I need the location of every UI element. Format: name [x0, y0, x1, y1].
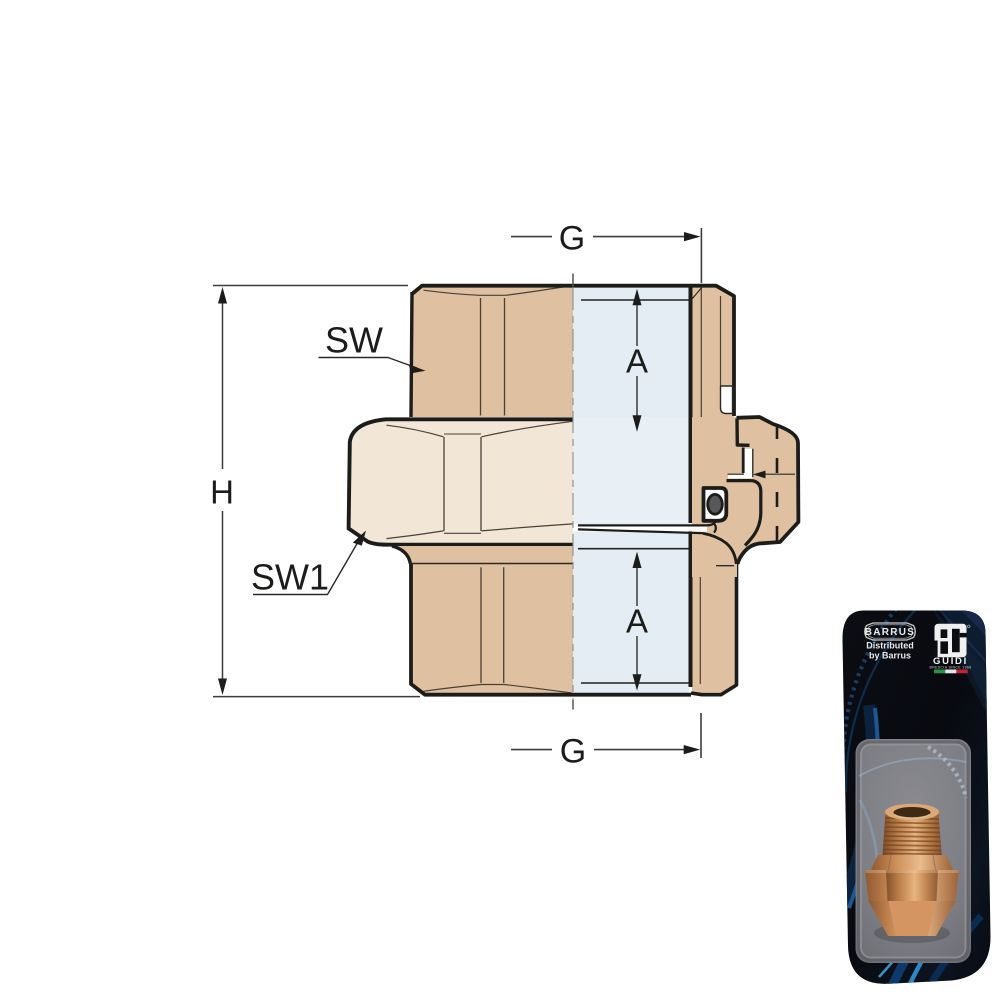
svg-text:G: G: [559, 220, 585, 258]
svg-text:A: A: [626, 342, 648, 379]
svg-text:G: G: [560, 733, 586, 771]
svg-text:by Barrus: by Barrus: [869, 651, 911, 661]
svg-text:BRESCIA SINCE 1968: BRESCIA SINCE 1968: [930, 665, 972, 669]
svg-text:SW: SW: [325, 320, 383, 361]
svg-text:H: H: [210, 474, 234, 511]
svg-text:Distributed: Distributed: [866, 641, 914, 651]
svg-text:A: A: [626, 602, 648, 639]
svg-text:SW1: SW1: [251, 557, 329, 598]
svg-text:BARRUS: BARRUS: [865, 627, 916, 638]
